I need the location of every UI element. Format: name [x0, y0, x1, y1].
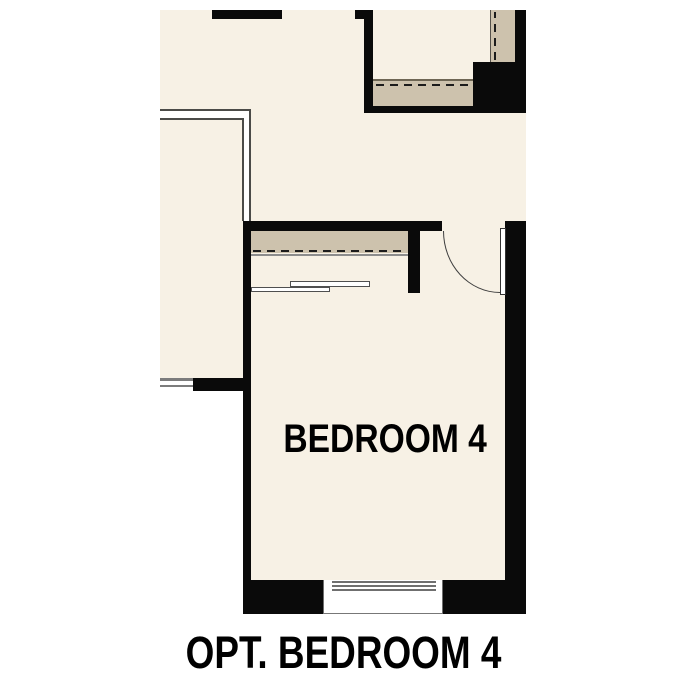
room-label-text: BEDROOM 4	[283, 417, 486, 462]
left-window	[160, 378, 193, 391]
door-leaf	[500, 228, 506, 295]
upper-closet-shelf-band	[373, 79, 473, 106]
wall-upper-right-block	[473, 62, 526, 113]
bottom-window-glass-1	[332, 581, 436, 583]
wall-closet-partition	[408, 231, 420, 293]
bedroom-closet-rod-dashes	[253, 250, 406, 252]
plan-caption-text: OPT. BEDROOM 4	[186, 627, 502, 679]
closet-shelf-outline-2	[251, 287, 330, 292]
bedroom-closet-shelf-band	[251, 231, 408, 253]
openwall-horizontal	[160, 109, 244, 120]
wall-upper-closet-bottom	[364, 106, 473, 113]
left-window-line-2	[160, 385, 193, 387]
wall-top-stub	[355, 10, 373, 19]
room-label: BEDROOM 4	[258, 417, 512, 462]
wall-bedroom-north	[251, 221, 442, 231]
upper-closet-rod-dashes	[376, 84, 471, 86]
wall-upper-right-edge	[515, 10, 526, 62]
linen-dashed-line	[494, 12, 496, 60]
wall-leftroom-bottom	[193, 378, 243, 391]
outside-area	[160, 391, 243, 614]
bottom-window	[323, 580, 443, 614]
wall-bedroom-west	[243, 220, 251, 614]
plan-caption: OPT. BEDROOM 4	[0, 627, 687, 679]
linen-shelf-strip	[490, 10, 515, 62]
wall-upper-closet-left	[364, 19, 373, 113]
bottom-window-glass-3	[332, 589, 436, 591]
bedroom-closet-shelf-edge	[251, 254, 408, 256]
wall-top-bar	[212, 10, 282, 19]
openwall-vertical	[242, 109, 251, 221]
bottom-window-glass-2	[332, 585, 436, 587]
left-window-line-1	[160, 378, 193, 381]
floorplan-canvas: BEDROOM 4 OPT. BEDROOM 4	[0, 0, 687, 687]
